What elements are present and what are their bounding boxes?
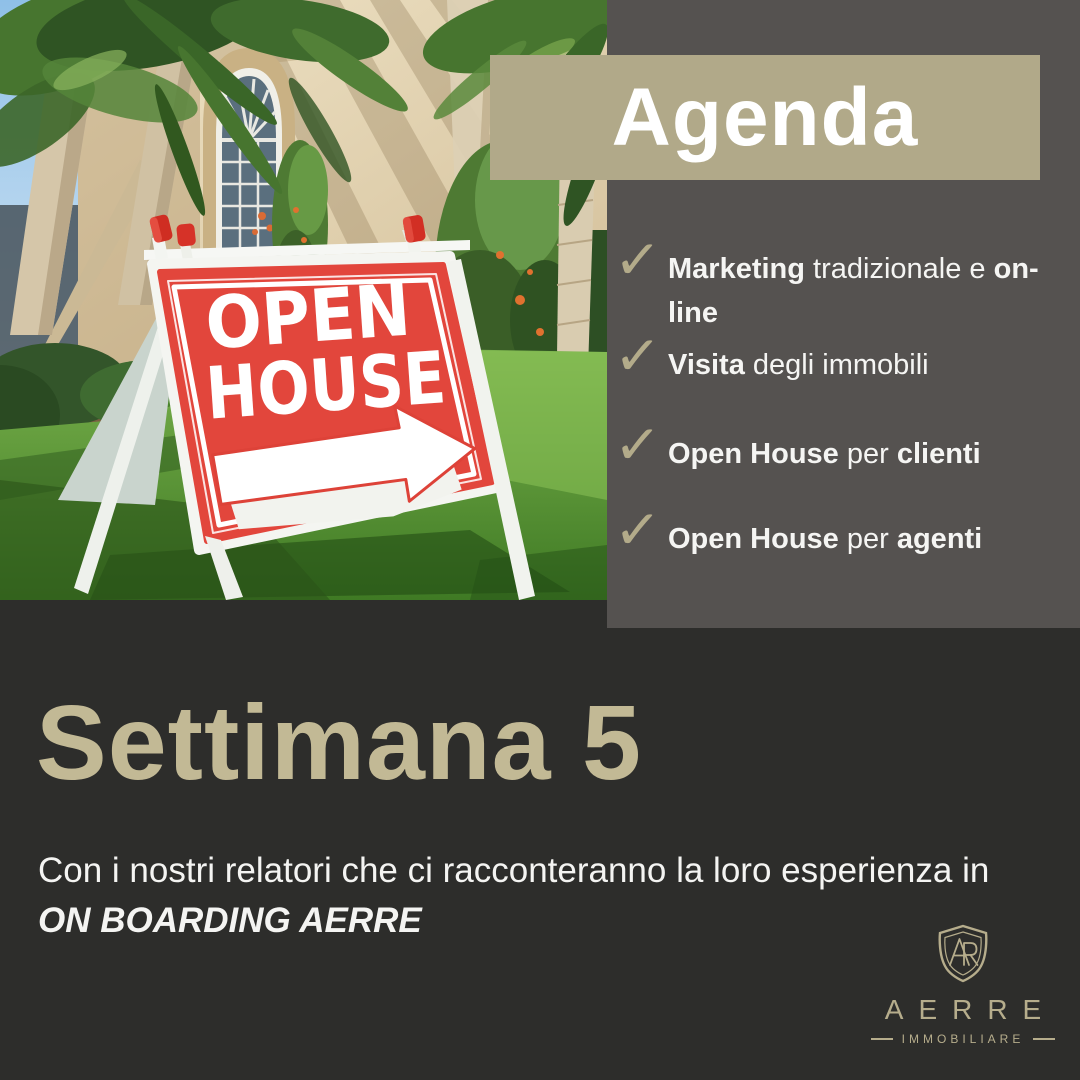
brand-tagline-row: IMMOBILIARE <box>871 1032 1056 1046</box>
text-segment: degli immobili <box>745 349 929 381</box>
text-segment: tradizionale e <box>805 253 994 285</box>
text-segment: Visita <box>668 349 745 381</box>
agenda-item-text: Open House per agenti <box>668 517 1040 561</box>
shield-logo-icon <box>935 924 991 984</box>
text-segment: Open House <box>668 523 839 555</box>
agenda-title-band: Agenda <box>490 55 1040 180</box>
check-icon: ✓ <box>612 328 664 386</box>
text-segment: clienti <box>897 438 981 470</box>
tagline-right-dash <box>1033 1038 1055 1040</box>
text-segment: Open House <box>668 438 839 470</box>
agenda-item-text: Open House per clienti <box>668 432 1040 476</box>
agenda-item-text: Marketing tradizionale e on-line <box>668 247 1040 335</box>
text-segment: agenti <box>897 523 982 555</box>
tagline-left-dash <box>871 1038 893 1040</box>
agenda-item: ✓Open House per agenti <box>613 517 1040 561</box>
agenda-item-text: Visita degli immobili <box>668 343 1040 387</box>
brand-name: AERRE <box>870 994 1056 1026</box>
check-icon: ✓ <box>612 232 664 290</box>
text-segment: Marketing <box>668 253 805 285</box>
monogram-ar <box>950 939 978 965</box>
text-segment: Con i nostri relatori che ci racconteran… <box>38 851 989 890</box>
check-icon: ✓ <box>612 417 664 475</box>
brand-logo: AERRE IMMOBILIARE <box>873 924 1053 1046</box>
agenda-item: ✓Open House per clienti <box>613 432 1040 476</box>
text-segment: per <box>839 438 897 470</box>
agenda-title: Agenda <box>612 71 919 165</box>
brand-tagline: IMMOBILIARE <box>902 1032 1025 1046</box>
week-title: Settimana 5 <box>36 683 642 804</box>
check-icon: ✓ <box>612 502 664 560</box>
agenda-item: ✓Visita degli immobili <box>613 343 1040 387</box>
text-segment: ON BOARDING AERRE <box>38 901 422 940</box>
text-segment: per <box>839 523 897 555</box>
agenda-item: ✓Marketing tradizionale e on-line <box>613 247 1040 335</box>
